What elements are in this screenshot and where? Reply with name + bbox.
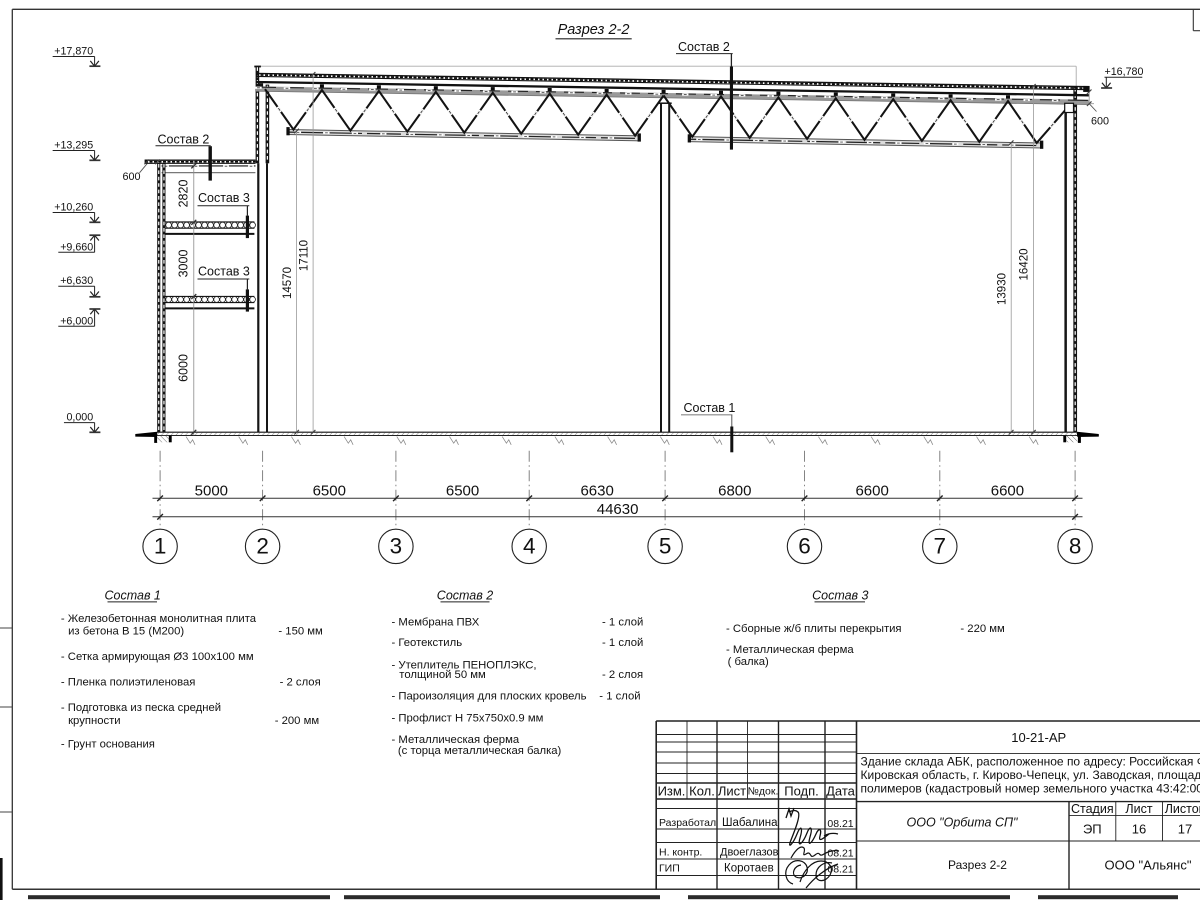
svg-text:6600: 6600 — [991, 482, 1024, 499]
svg-text:- Мембрана ПВХ: - Мембрана ПВХ — [392, 617, 480, 629]
svg-text:Коротаев: Коротаев — [724, 863, 774, 875]
svg-text:3: 3 — [390, 533, 403, 558]
svg-text:из бетона В 15 (М200): из бетона В 15 (М200) — [68, 626, 184, 638]
svg-text:16420: 16420 — [1019, 249, 1031, 281]
svg-text:ООО "Альянс": ООО "Альянс" — [1105, 858, 1192, 873]
svg-text:- Сетка армирующая Ø3 100х100: - Сетка армирующая Ø3 100х100 мм — [61, 651, 254, 663]
svg-text:5000: 5000 — [195, 482, 228, 499]
svg-text:Состав 1: Состав 1 — [104, 588, 160, 602]
svg-text:6000: 6000 — [177, 354, 191, 382]
svg-text:16: 16 — [1132, 822, 1146, 837]
svg-text:- Подготовка из песка средней: - Подготовка из песка средней — [61, 702, 221, 714]
svg-text:08.21: 08.21 — [827, 848, 853, 860]
svg-text:- 150 мм: - 150 мм — [278, 626, 322, 638]
svg-text:5: 5 — [659, 533, 672, 558]
svg-text:2820: 2820 — [177, 180, 191, 208]
svg-text:Шабалина: Шабалина — [722, 817, 778, 829]
svg-text:крупности: крупности — [68, 715, 121, 727]
svg-text:- Геотекстиль: - Геотекстиль — [392, 637, 463, 649]
svg-text:толщиной 50 мм: толщиной 50 мм — [399, 669, 486, 681]
svg-text:Стадия: Стадия — [1071, 802, 1114, 816]
svg-text:+6,630: +6,630 — [60, 275, 93, 287]
svg-text:8: 8 — [1069, 533, 1082, 558]
svg-text:ГИП: ГИП — [659, 863, 680, 875]
svg-text:- Пароизоляция для плоских кро: - Пароизоляция для плоских кровель — [392, 690, 587, 702]
svg-text:- 2 слоя: - 2 слоя — [280, 676, 321, 688]
svg-text:Разработал: Разработал — [659, 817, 716, 829]
svg-text:+13,295: +13,295 — [54, 140, 93, 152]
svg-text:1: 1 — [154, 533, 167, 558]
svg-text:№док.: №док. — [748, 786, 779, 798]
svg-text:- Грунт основания: - Грунт основания — [61, 738, 155, 750]
svg-text:17110: 17110 — [299, 240, 311, 271]
svg-text:Н. контр.: Н. контр. — [659, 847, 702, 859]
svg-text:44630: 44630 — [597, 501, 639, 518]
svg-text:- Профлист Н 75х750х0.9 мм: - Профлист Н 75х750х0.9 мм — [392, 713, 544, 725]
svg-text:6500: 6500 — [446, 482, 479, 499]
svg-text:Дата: Дата — [826, 784, 856, 799]
svg-text:Разрез 2-2: Разрез 2-2 — [948, 858, 1007, 872]
svg-text:Состав 2: Состав 2 — [158, 133, 210, 147]
svg-text:- Металлическая ферма: - Металлическая ферма — [726, 644, 854, 656]
svg-text:- 200 мм: - 200 мм — [275, 715, 319, 727]
svg-text:Двоеглазов: Двоеглазов — [720, 847, 779, 859]
svg-text:Состав 3: Состав 3 — [198, 264, 250, 278]
svg-text:+17,870: +17,870 — [54, 46, 93, 58]
svg-text:Лист: Лист — [1125, 802, 1152, 816]
svg-text:13930: 13930 — [997, 273, 1009, 305]
svg-text:17: 17 — [1178, 822, 1192, 837]
svg-text:Лист: Лист — [718, 784, 746, 799]
svg-text:- Сборные ж/б плиты перекрытия: - Сборные ж/б плиты перекрытия — [726, 623, 902, 635]
svg-text:6600: 6600 — [855, 482, 888, 499]
svg-text:+9,660: +9,660 — [60, 241, 93, 253]
svg-text:Кировская область, г. Кирово-Ч: Кировская область, г. Кирово-Чепецк, ул.… — [861, 768, 1200, 782]
svg-text:- 2 слоя: - 2 слоя — [602, 669, 643, 681]
svg-text:0,000: 0,000 — [66, 412, 93, 424]
svg-text:Листов: Листов — [1165, 802, 1200, 816]
svg-text:6630: 6630 — [580, 482, 613, 499]
svg-text:6500: 6500 — [313, 482, 346, 499]
svg-text:14570: 14570 — [282, 267, 294, 299]
svg-text:полимеров (кадастровый номер з: полимеров (кадастровый номер земельного … — [861, 782, 1200, 796]
svg-text:ЭП: ЭП — [1083, 822, 1102, 837]
svg-text:Кол.: Кол. — [689, 784, 715, 799]
svg-text:6800: 6800 — [718, 482, 751, 499]
svg-text:4: 4 — [523, 533, 536, 558]
svg-text:10-21-АР: 10-21-АР — [1011, 730, 1066, 745]
svg-text:2: 2 — [256, 533, 269, 558]
svg-text:- 1 слой: - 1 слой — [599, 690, 640, 702]
svg-text:- 220 мм: - 220 мм — [960, 623, 1004, 635]
svg-text:Состав 2: Состав 2 — [437, 588, 493, 602]
svg-text:(с торца металлическая балка): (с торца металлическая балка) — [398, 745, 562, 757]
svg-text:+6,000: +6,000 — [60, 315, 93, 327]
svg-text:Изм.: Изм. — [658, 784, 686, 799]
svg-text:7: 7 — [934, 533, 947, 558]
svg-text:- 1 слой: - 1 слой — [602, 637, 643, 649]
svg-text:08.21: 08.21 — [827, 818, 853, 830]
svg-text:+10,260: +10,260 — [54, 202, 93, 214]
svg-text:600: 600 — [123, 171, 141, 183]
svg-text:Состав 3: Состав 3 — [812, 588, 868, 602]
svg-text:6: 6 — [798, 533, 811, 558]
svg-text:Разрез 2-2: Разрез 2-2 — [558, 22, 630, 38]
svg-text:- 1 слой: - 1 слой — [602, 617, 643, 629]
svg-text:( балка): ( балка) — [728, 656, 769, 668]
svg-text:600: 600 — [1091, 116, 1109, 128]
svg-text:- Пленка полиэтиленовая: - Пленка полиэтиленовая — [61, 676, 195, 688]
svg-text:Состав 2: Состав 2 — [678, 40, 730, 54]
svg-text:3000: 3000 — [177, 250, 191, 278]
svg-text:Подп.: Подп. — [784, 784, 819, 799]
svg-text:Состав 1: Состав 1 — [684, 401, 736, 415]
svg-text:ООО "Орбита СП": ООО "Орбита СП" — [907, 816, 1019, 830]
svg-text:Состав 3: Состав 3 — [198, 191, 250, 205]
svg-text:Здание склада АБК, расположенн: Здание склада АБК, расположенное по адре… — [861, 755, 1200, 769]
svg-text:- Железобетонная монолитная п: - Железобетонная монолитная плита — [61, 613, 257, 625]
svg-text:+16,780: +16,780 — [1105, 66, 1144, 78]
